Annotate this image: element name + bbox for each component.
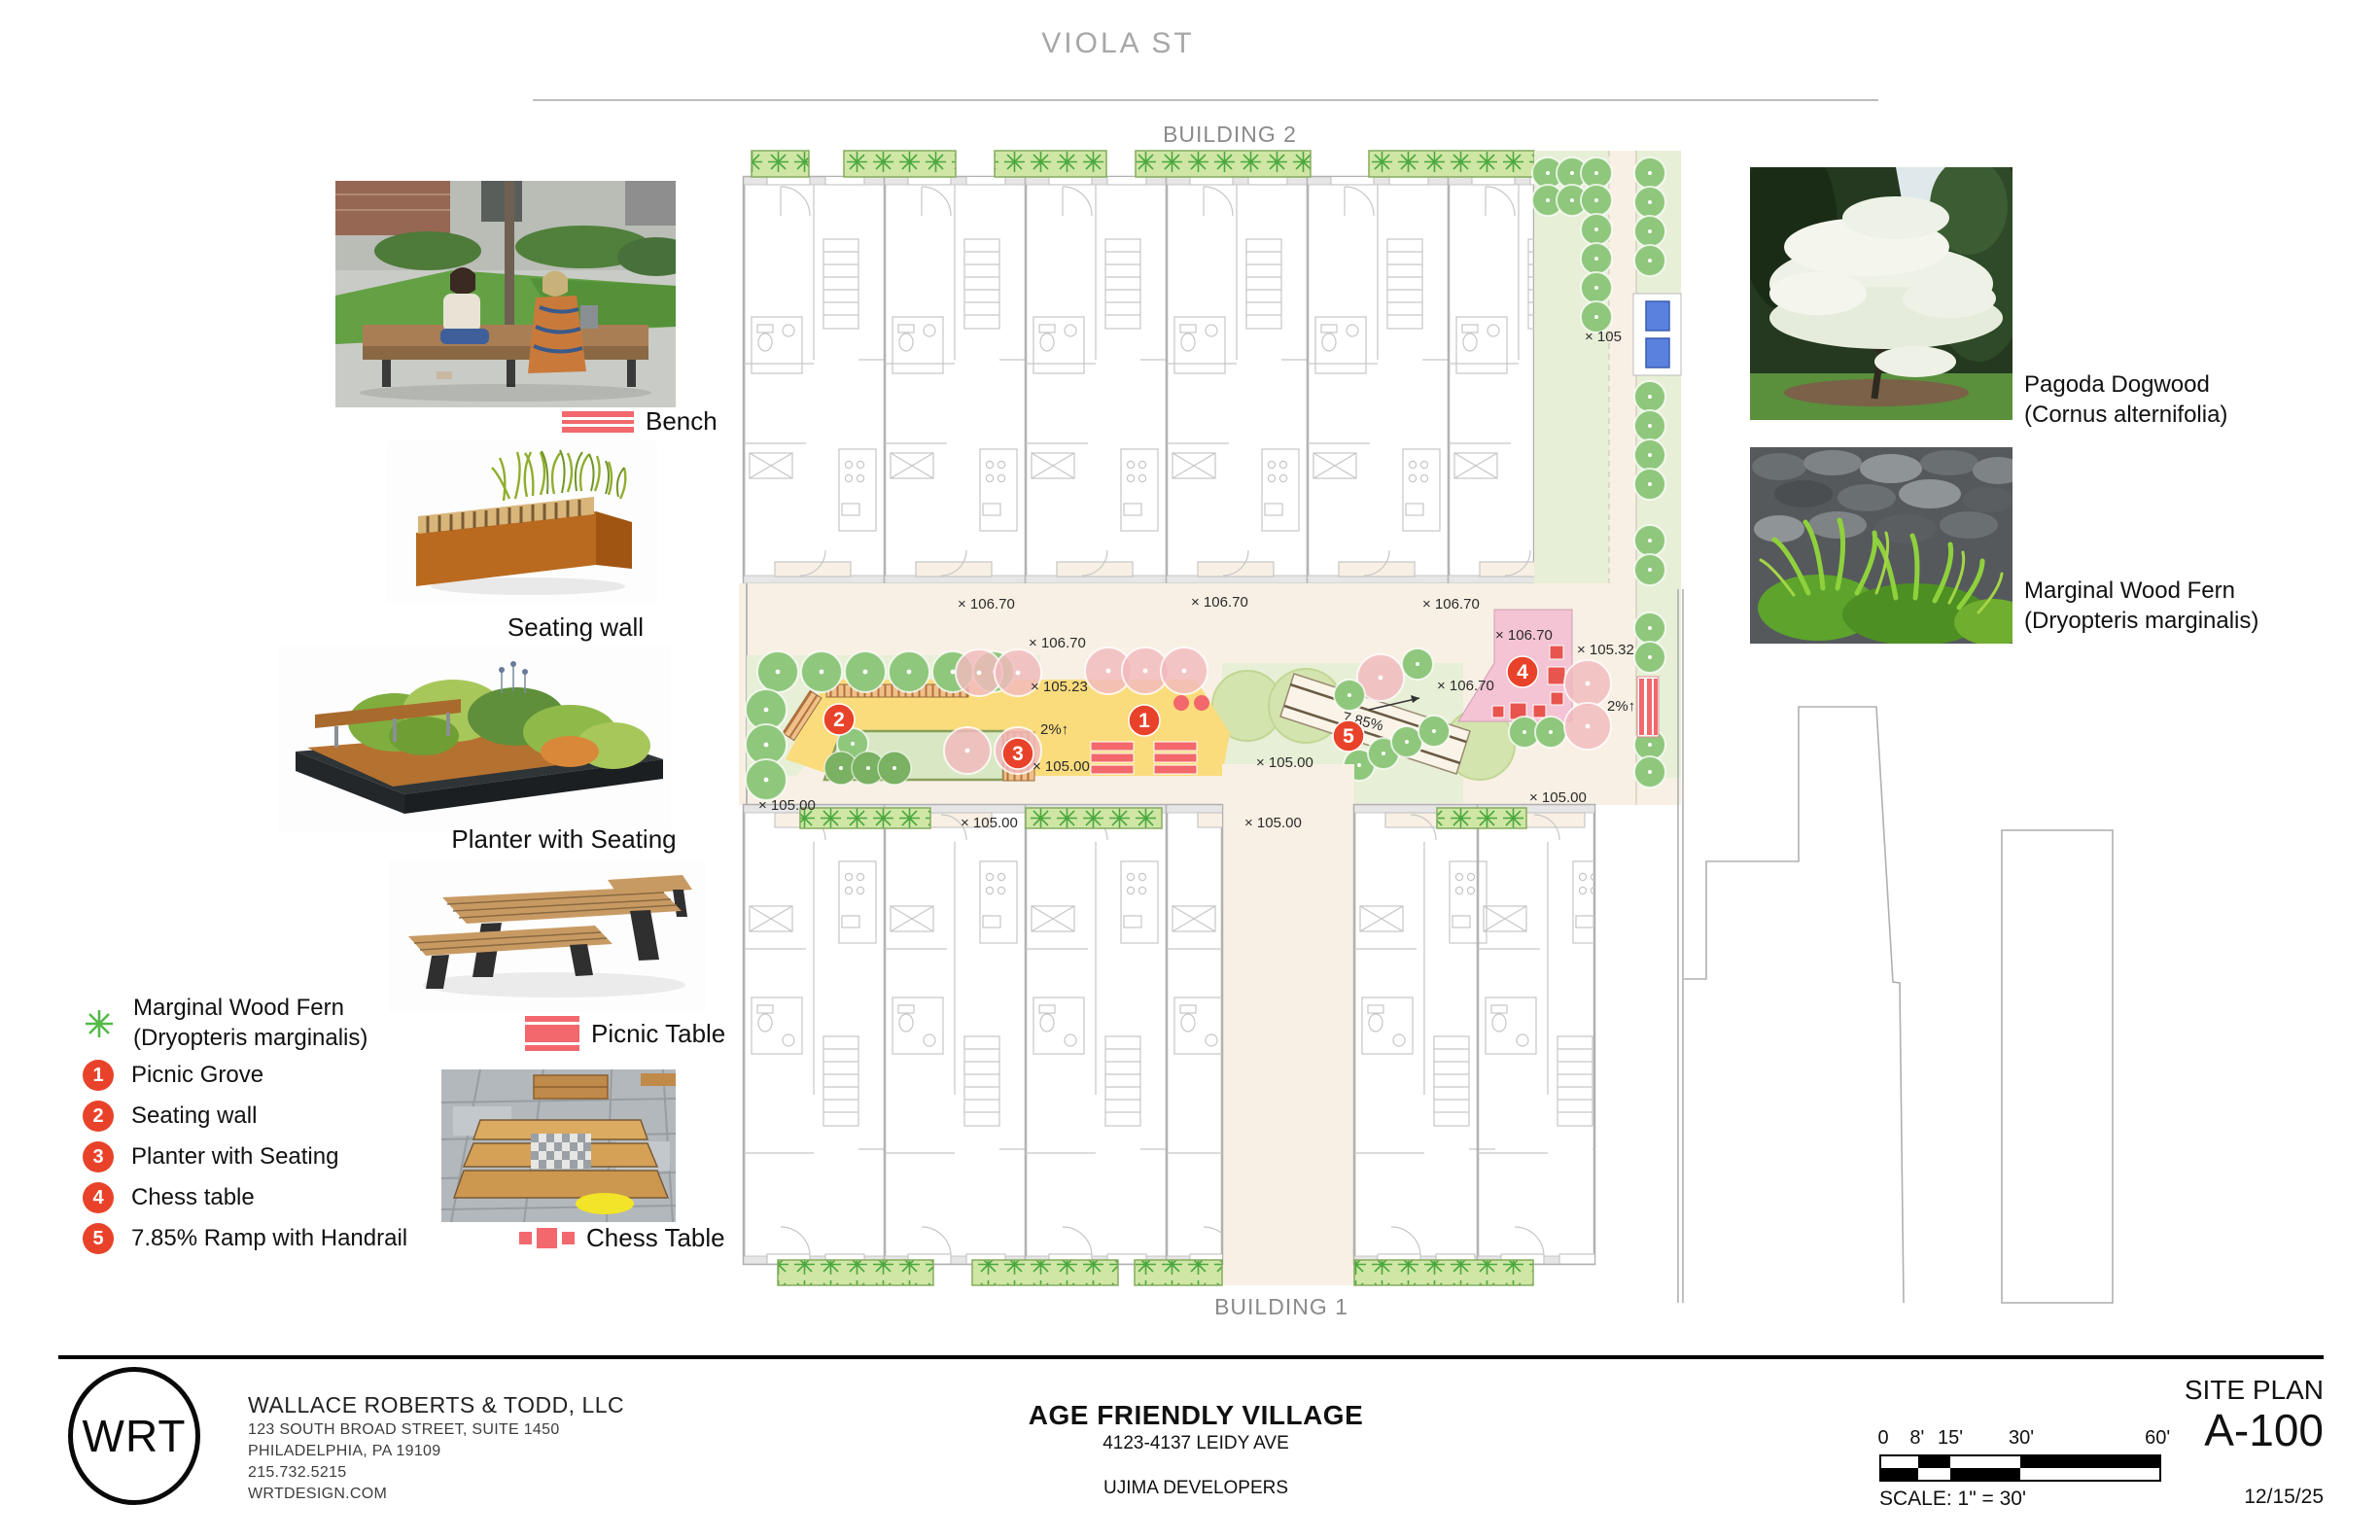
picnic-table-photo [389,860,706,1012]
driveway [1222,764,1354,1285]
svg-text:1: 1 [1138,710,1150,732]
svg-text:× 106.70: × 106.70 [1437,678,1494,694]
key-item-1: 1 Picnic Grove [83,1060,263,1091]
bench-label: Bench [646,406,717,437]
street-edge-line [533,99,1878,101]
building2-planting-strips [752,151,1534,177]
key-marker-3: 3 [83,1141,114,1172]
chess-table-photo [441,1069,676,1222]
svg-text:2: 2 [833,709,845,731]
pagoda-label: Pagoda Dogwood (Cornus alternifolia) [2024,369,2227,430]
svg-text:× 105.32: × 105.32 [1577,642,1634,658]
svg-text:× 105.00: × 105.00 [1529,789,1587,806]
picnic-label: Picnic Table [591,1019,725,1049]
svg-text:× 105.00: × 105.00 [961,815,1018,831]
firm-name: WALLACE ROBERTS & TODD, LLC [248,1392,624,1418]
key-fern: Marginal Wood Fern (Dryopteris marginali… [83,994,367,1053]
building2-plan [744,151,1590,583]
svg-text:× 105: × 105 [1585,329,1622,345]
key-item-5: 5 7.85% Ramp with Handrail [83,1223,407,1254]
sheet-name: SITE PLAN [2042,1375,2324,1406]
svg-text:× 105.00: × 105.00 [1256,754,1313,771]
firm-phone: 215.732.5215 [248,1464,346,1482]
svg-text:2%↑: 2%↑ [1040,721,1068,738]
svg-text:× 105.00: × 105.00 [758,797,816,814]
firm-address2: PHILADELPHIA, PA 19109 [248,1443,440,1460]
bench-photo [335,181,676,407]
key-item-2: 2 Seating wall [83,1101,257,1132]
firm-address1: 123 SOUTH BROAD STREET, SUITE 1450 [248,1421,560,1439]
rock-wall [1752,450,2012,543]
courtyard [739,583,1633,805]
plan-bench-east [1637,677,1659,737]
seating-wall-photo [387,440,657,603]
key-marker-4: 4 [83,1182,114,1213]
svg-text:× 106.70: × 106.70 [1191,594,1248,611]
svg-text:× 106.70: × 106.70 [1422,596,1480,612]
sheet-number: A-100 [2042,1404,2324,1456]
wrt-logo: WRT [68,1367,200,1505]
chess-swatch [519,1228,575,1248]
picnic-legend: Picnic Table [525,1016,725,1051]
svg-text:× 105.00: × 105.00 [1032,758,1090,775]
chess-label: Chess Table [586,1223,725,1253]
bench-legend: Bench [562,406,717,437]
wood-fern-photo [1750,447,2012,644]
key-marker-2: 2 [83,1101,114,1132]
site-plan-sheet: VIOLA ST [0,0,2380,1540]
sheet-date: 12/15/25 [2042,1486,2324,1509]
key-item-3: 3 Planter with Seating [83,1141,338,1172]
svg-text:× 105.23: × 105.23 [1031,679,1088,695]
project-address: 4123-4137 LEIDY AVE [924,1433,1468,1454]
chess-legend: Chess Table [519,1223,725,1253]
scale-caption: SCALE: 1" = 30' [1879,1487,2026,1511]
plan-blue-table-2 [1646,338,1669,367]
svg-text:× 106.70: × 106.70 [1029,635,1086,651]
yellow-sticker [576,1193,634,1214]
chess-tabletop [454,1120,668,1198]
key-fern-label: Marginal Wood Fern (Dryopteris marginali… [133,994,367,1053]
planter-photo [278,647,671,831]
key-item-4: 4 Chess table [83,1182,255,1213]
svg-text:× 106.70: × 106.70 [958,596,1015,612]
svg-text:3: 3 [1012,743,1024,765]
svg-text:4: 4 [1517,661,1528,683]
pagoda-dogwood-photo [1750,167,2012,420]
key-marker-1: 1 [83,1060,114,1091]
street-name: VIOLA ST [992,27,1244,60]
bench-swatch [562,411,634,433]
planter-label: Planter with Seating [437,824,690,855]
wood-fern-label: Marginal Wood Fern (Dryopteris marginali… [2024,576,2258,636]
svg-text:× 106.70: × 106.70 [1495,627,1553,644]
project-client: UJIMA DEVELOPERS [924,1478,1468,1499]
plan-blue-table-1 [1646,301,1669,331]
scale-bar-graphic [1879,1454,2161,1482]
building1-plan [744,764,1619,1285]
titleblock-divider [58,1355,2324,1359]
svg-text:5: 5 [1343,725,1354,748]
svg-text:2%↑: 2%↑ [1607,698,1635,715]
key-marker-5: 5 [83,1223,114,1254]
fern-icon [83,1007,116,1040]
building1-label: BUILDING 1 [1214,1294,1348,1319]
seating-wall-label: Seating wall [459,612,692,643]
firm-website: WRTDESIGN.COM [248,1486,387,1503]
adjacent-buildings-outline [1678,589,2113,1303]
svg-text:× 105.00: × 105.00 [1244,815,1302,831]
picnic-swatch [525,1016,579,1051]
project-title: AGE FRIENDLY VILLAGE [924,1400,1468,1431]
building2-label: BUILDING 2 [1163,122,1297,147]
